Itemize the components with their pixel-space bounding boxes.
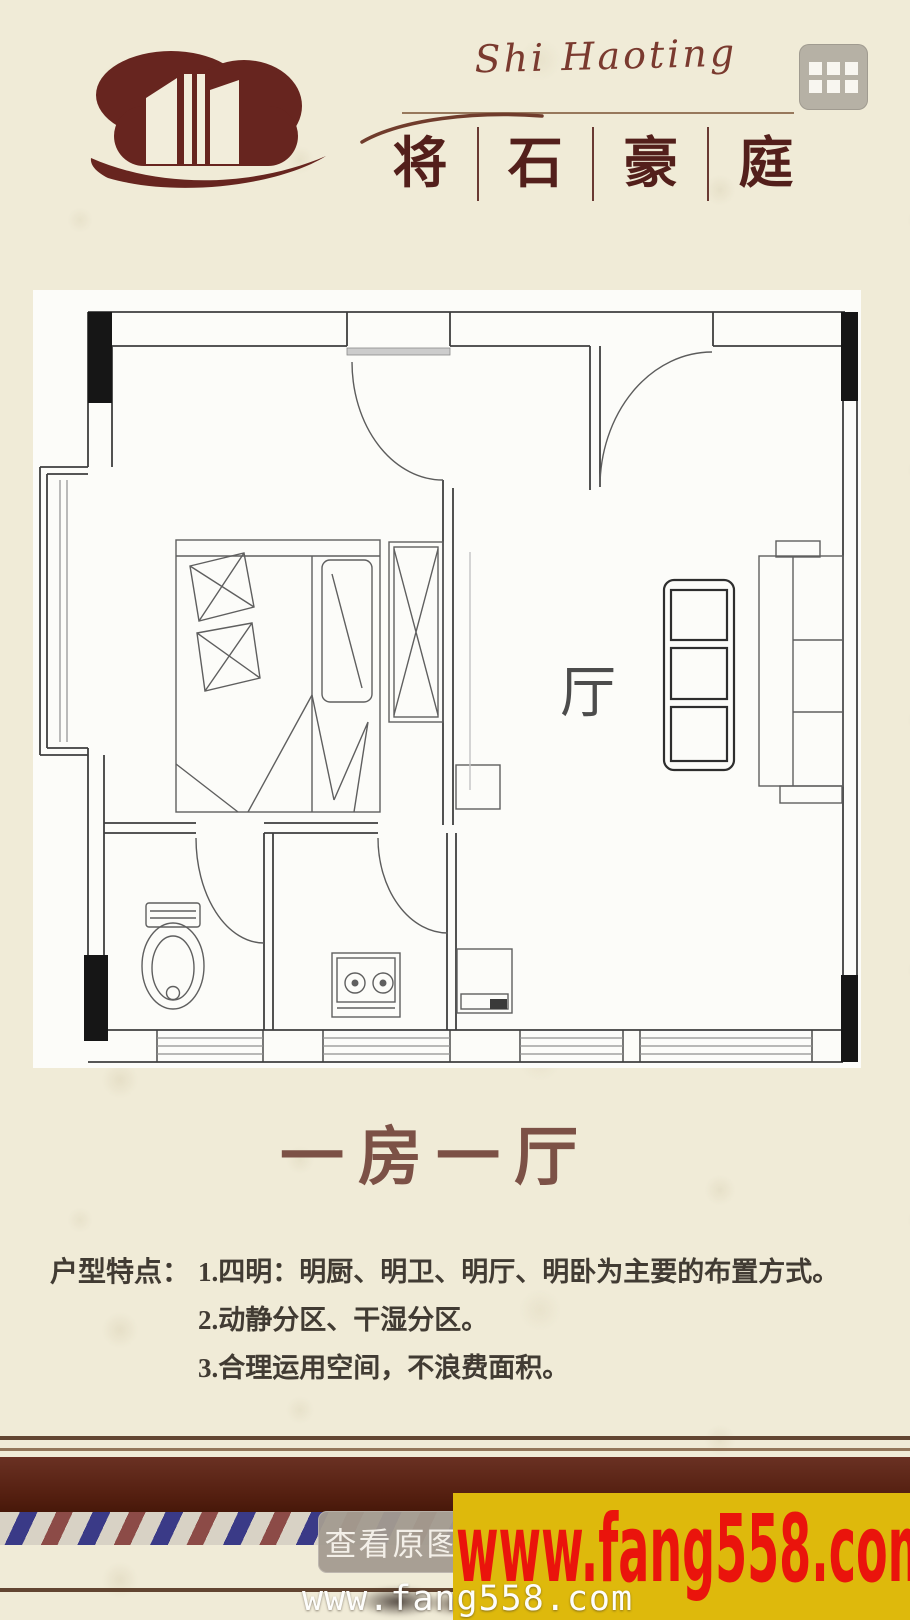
view-original-button[interactable]: 查看原图 <box>318 1511 467 1573</box>
view-original-label: 查看原图 <box>324 1519 460 1565</box>
features-block: 户型特点： 1.四明：明厨、明卫、明厅、明卧为主要的布置方式。 2.动静分区、干… <box>50 1256 882 1400</box>
cabinet <box>456 765 500 809</box>
sofa <box>759 541 843 803</box>
layout-title: 一房一厅 <box>0 1106 872 1198</box>
brand-cloud-building-logo <box>76 40 331 210</box>
plan-windows <box>60 348 812 1054</box>
stove <box>332 953 400 1017</box>
brand-chinese-name: 将 石 豪 庭 <box>388 124 798 204</box>
bed <box>176 540 380 812</box>
feature-item: 1.四明：明厨、明卫、明厅、明卧为主要的布置方式。 <box>198 1256 839 1289</box>
brand-char: 将 <box>388 124 452 204</box>
tv-cabinet <box>664 580 734 770</box>
room-label-living: 厅 <box>560 663 616 725</box>
brand-char: 豪 <box>619 124 683 204</box>
toilet <box>142 903 204 1009</box>
brand-char: 石 <box>503 124 567 204</box>
grid-menu-icon <box>809 62 858 93</box>
divider-line-thin <box>0 1448 910 1451</box>
watermark-url-small: www.fang558.com <box>302 1582 633 1617</box>
brand-separator <box>707 127 709 201</box>
divider-line-top <box>0 1436 910 1440</box>
brand-separator <box>592 127 594 201</box>
brand-script-name: Shi Haoting <box>435 30 776 97</box>
feature-item: 3.合理运用空间，不浪费面积。 <box>198 1352 839 1385</box>
feature-item: 2.动静分区、干湿分区。 <box>198 1304 839 1337</box>
floor-plan: 厅 <box>33 290 861 1068</box>
wardrobe <box>389 542 443 722</box>
fridge <box>457 949 512 1013</box>
features-label: 户型特点： <box>50 1256 198 1400</box>
brand-char: 庭 <box>734 124 798 204</box>
grid-menu-button[interactable] <box>799 44 868 110</box>
brand-separator <box>477 127 479 201</box>
